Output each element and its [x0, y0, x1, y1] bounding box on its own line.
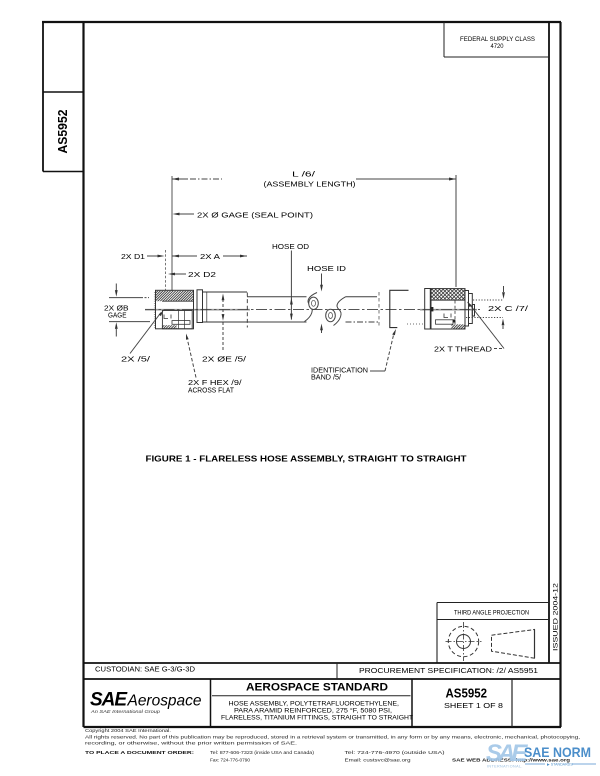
svg-text:2X T THREAD: 2X T THREAD — [434, 347, 492, 354]
svg-text:THIRD ANGLE PROJECTION: THIRD ANGLE PROJECTION — [454, 611, 529, 617]
svg-text:Email: custsvc@sae.org: Email: custsvc@sae.org — [345, 758, 412, 763]
svg-text:ACROSS FLAT: ACROSS FLAT — [188, 388, 235, 395]
svg-text:2X C /7/: 2X C /7/ — [488, 306, 528, 313]
svg-text:L /6/: L /6/ — [292, 172, 315, 179]
svg-text:FEDERAL SUPPLY CLASS: FEDERAL SUPPLY CLASS — [460, 37, 535, 43]
svg-text:2X D1: 2X D1 — [121, 254, 145, 261]
svg-text:ISSUED 2004-12: ISSUED 2004-12 — [553, 582, 560, 651]
svg-text:AS5952: AS5952 — [56, 109, 70, 153]
svg-text:Tel: 724-776-4970 (outside USA: Tel: 724-776-4970 (outside USA) — [345, 750, 446, 755]
svg-text:GAGE: GAGE — [108, 313, 127, 320]
svg-text:An SAE International Group: An SAE International Group — [90, 709, 161, 714]
svg-text:Aerospace: Aerospace — [127, 693, 202, 710]
svg-text:FIGURE 1 - FLARELESS HOSE ASSE: FIGURE 1 - FLARELESS HOSE ASSEMBLY, STRA… — [146, 455, 467, 464]
svg-text:2X A: 2X A — [200, 254, 220, 261]
svg-text:2X F HEX /9/: 2X F HEX /9/ — [188, 380, 242, 387]
svg-text:recording, or otherwise, witho: recording, or otherwise, without the pri… — [85, 741, 297, 746]
svg-text:Tel: 877-606-7323 (inside USA: Tel: 877-606-7323 (inside USA and Canada… — [210, 750, 315, 755]
svg-text:SAE NORM: SAE NORM — [524, 744, 591, 760]
svg-text:2X ØB: 2X ØB — [104, 306, 129, 313]
svg-text:HOSE ASSEMBLY, POLYTETRAFLUORO: HOSE ASSEMBLY, POLYTETRAFLUOROETHYLENE, — [229, 701, 400, 708]
svg-text:SHEET 1 OF 8: SHEET 1 OF 8 — [444, 701, 503, 710]
svg-text:FLARELESS, TITANIUM FITTINGS,: FLARELESS, TITANIUM FITTINGS, STRAIGHT T… — [221, 715, 413, 722]
svg-text:BAND /5/: BAND /5/ — [311, 375, 341, 382]
svg-text:IDENTIFICATION: IDENTIFICATION — [311, 368, 368, 375]
svg-text:2X Ø GAGE (SEAL POINT): 2X Ø GAGE (SEAL POINT) — [197, 213, 313, 220]
svg-text:HOSE ID: HOSE ID — [307, 266, 346, 273]
svg-text:Fax: 724-776-0790: Fax: 724-776-0790 — [210, 758, 251, 763]
svg-text:PROCUREMENT SPECIFICATION: /2/: PROCUREMENT SPECIFICATION: /2/ AS5951 — [359, 668, 538, 675]
svg-text:(ASSEMBLY LENGTH): (ASSEMBLY LENGTH) — [264, 182, 356, 189]
svg-text:2X /5/: 2X /5/ — [121, 357, 150, 364]
svg-text:All rights reserved. No part o: All rights reserved. No part of this pub… — [85, 735, 580, 740]
svg-text:CUSTODIAN: SAE G-3/G-3D: CUSTODIAN: SAE G-3/G-3D — [95, 667, 195, 674]
svg-text:PARA ARAMID REINFORCED, 275 °F: PARA ARAMID REINFORCED, 275 °F, 5080 PSI… — [234, 707, 392, 715]
svg-text:AEROSPACE STANDARD: AEROSPACE STANDARD — [246, 682, 388, 694]
svg-text:HOSE OD: HOSE OD — [272, 244, 309, 251]
svg-text:INTERNATIONAL.: INTERNATIONAL. — [487, 765, 523, 769]
svg-text:SAE: SAE — [90, 690, 128, 711]
svg-text:Copyright 2004 SAE Internation: Copyright 2004 SAE International. — [85, 728, 171, 733]
svg-text:TO PLACE A DOCUMENT ORDER:: TO PLACE A DOCUMENT ORDER: — [85, 750, 195, 755]
svg-text:4720: 4720 — [491, 44, 505, 50]
svg-text:AS5952: AS5952 — [446, 687, 488, 701]
svg-text:2X ØE /5/: 2X ØE /5/ — [202, 357, 246, 364]
svg-text:2X D2: 2X D2 — [188, 272, 216, 279]
svg-text:SAE: SAE — [486, 740, 528, 767]
svg-text:▶ STANDARDS: ▶ STANDARDS — [547, 763, 573, 767]
